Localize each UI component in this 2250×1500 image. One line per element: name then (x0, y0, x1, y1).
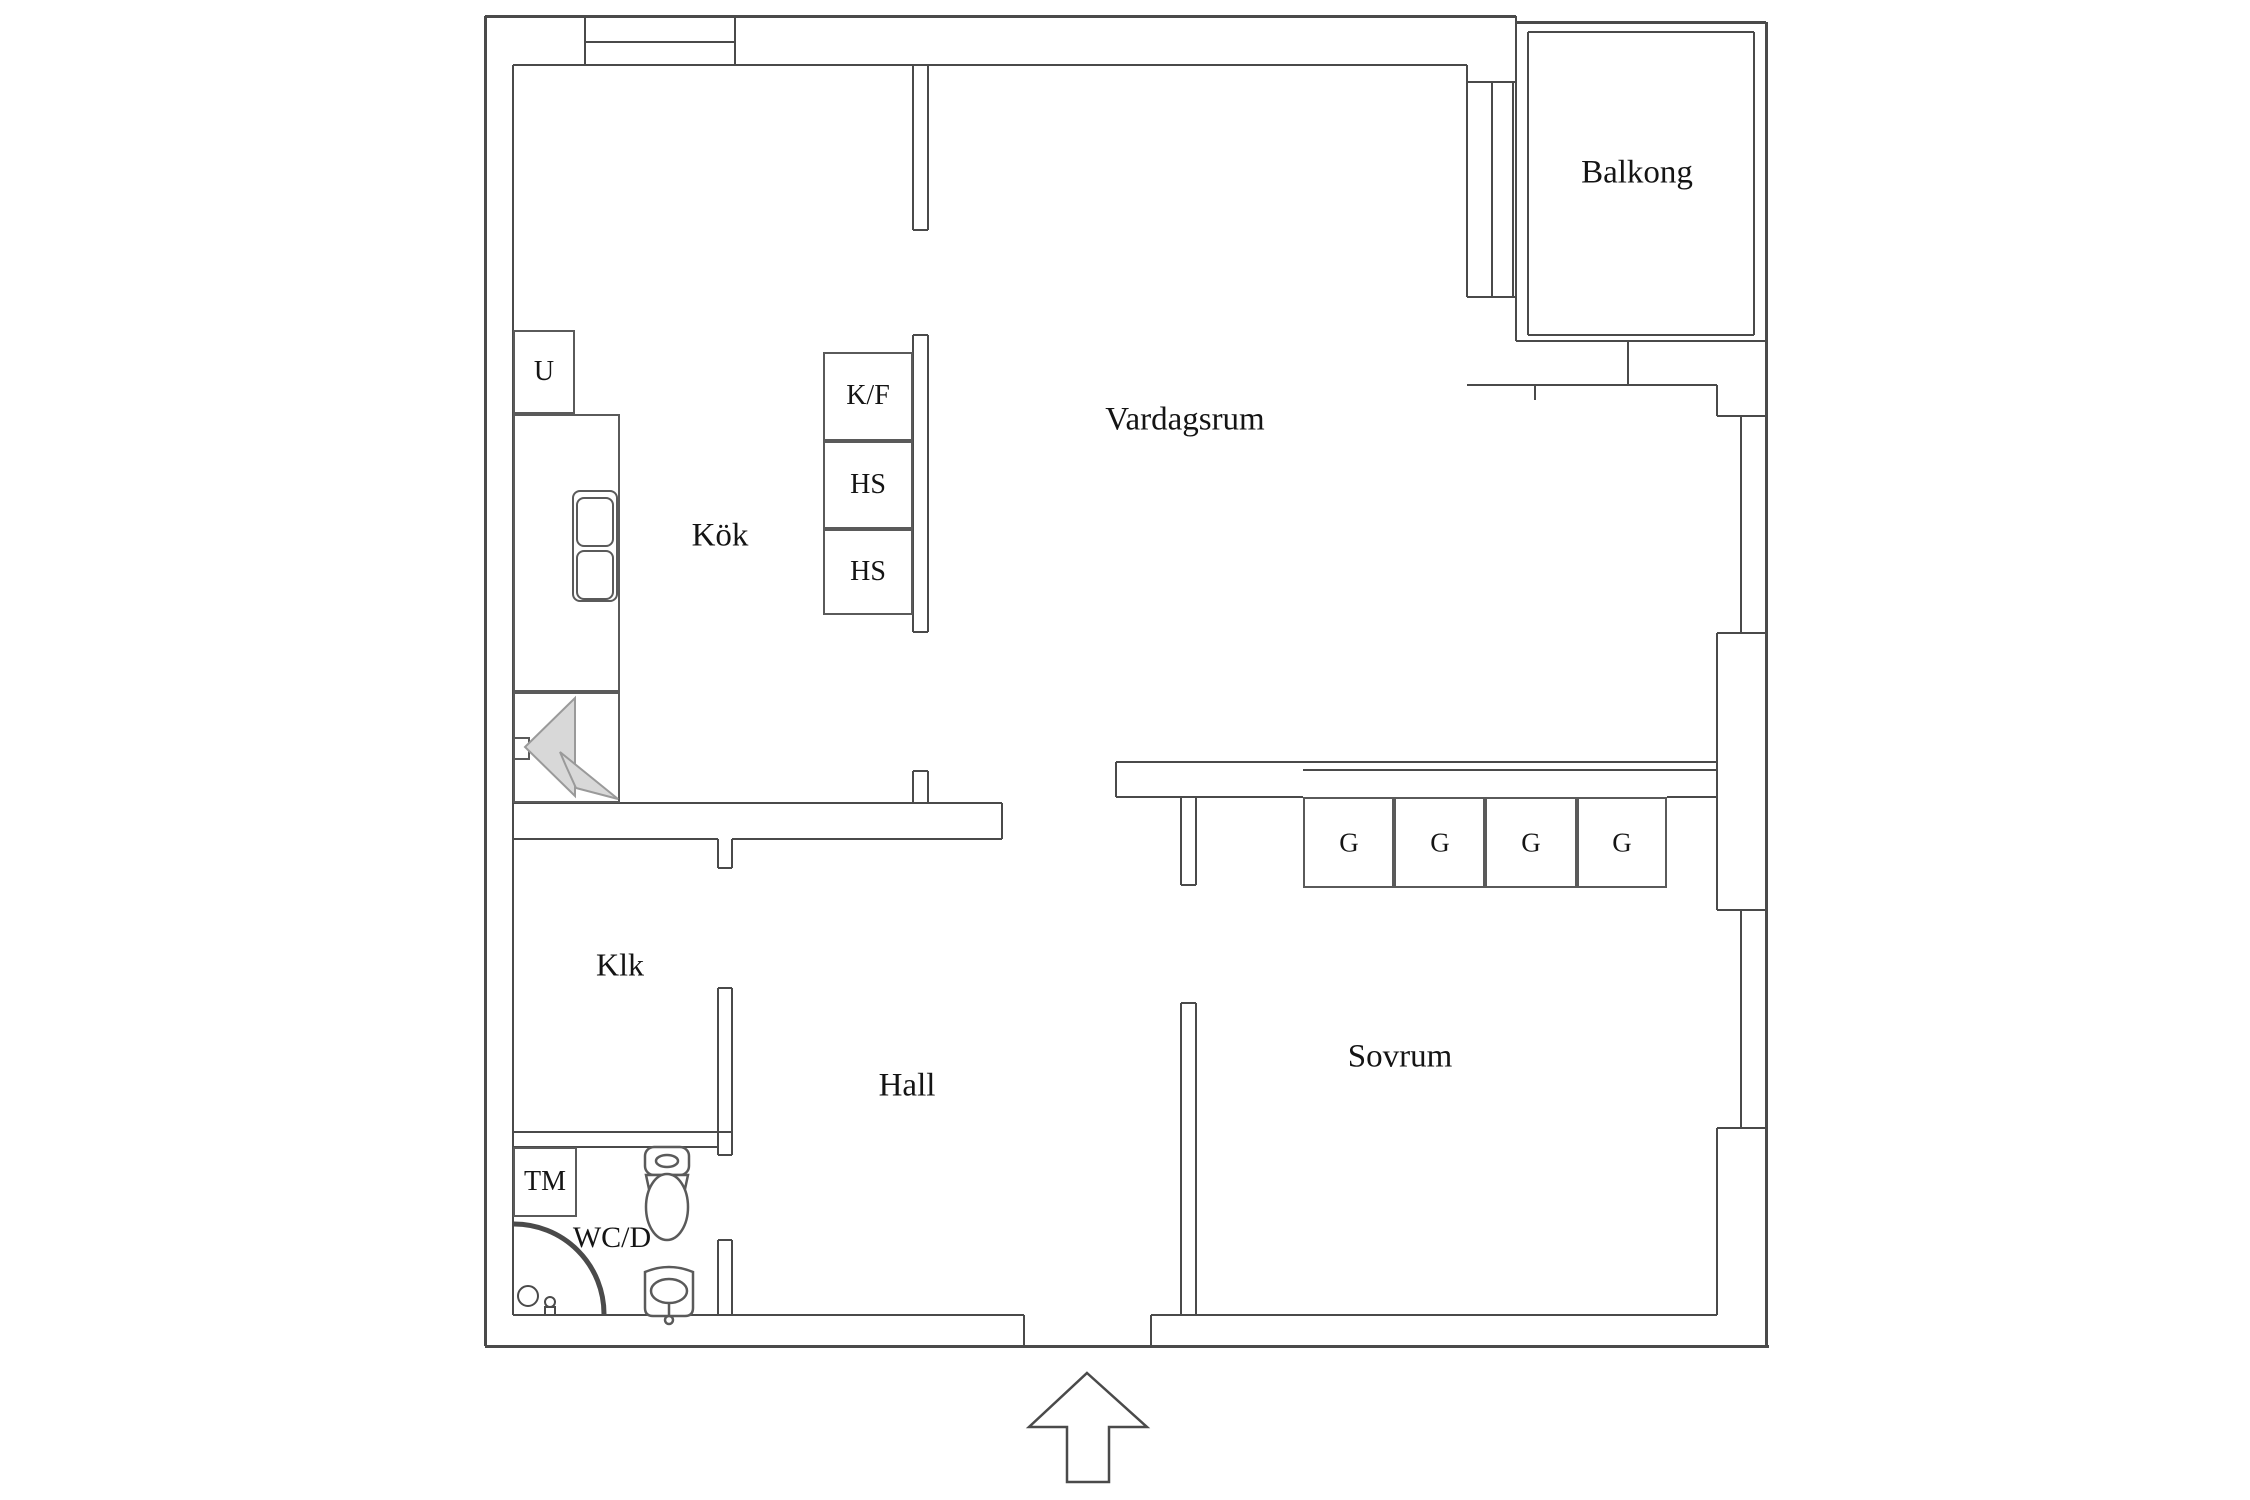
wall-segment (513, 64, 1467, 66)
wall-segment (734, 16, 736, 65)
wall-segment (927, 335, 929, 632)
wall-segment (1534, 385, 1536, 400)
label-g2: G (1430, 828, 1450, 859)
label-kf: K/F (846, 380, 890, 412)
wall-segment (1466, 65, 1468, 297)
wall-segment (718, 1154, 732, 1156)
wall-segment (513, 1314, 1024, 1316)
label-balkong: Balkong (1581, 155, 1693, 192)
wall-segment (1516, 21, 1766, 24)
floor-plan-canvas: BalkongVardagsrumKökKlkHallSovrumWC/DTMU… (0, 0, 2250, 1500)
wall-segment (717, 839, 719, 868)
wall-segment (731, 1240, 733, 1315)
wall-segment (1181, 1002, 1196, 1004)
label-hall: Hall (879, 1068, 936, 1105)
wall-segment (927, 771, 929, 803)
sink-bowl-1 (576, 497, 614, 547)
wall-segment (912, 771, 914, 803)
wall-segment (1491, 82, 1493, 297)
wall-segment (913, 334, 928, 336)
label-hs1: HS (850, 469, 886, 501)
wall-segment (1116, 761, 1717, 763)
wall-segment (1528, 334, 1754, 336)
label-g4: G (1612, 828, 1632, 859)
wall-segment (1180, 1003, 1182, 1315)
wall-segment (1180, 797, 1182, 885)
label-vardagsrum: Vardagsrum (1105, 402, 1264, 439)
wall-segment (718, 867, 732, 869)
wall-segment (1467, 384, 1717, 386)
wall-segment (718, 1239, 732, 1241)
wall-segment (1527, 32, 1529, 335)
entrance-arrow-icon (1029, 1373, 1147, 1482)
sink-bowl-2 (576, 550, 614, 600)
wall-segment (731, 988, 733, 1155)
wall-segment (1765, 22, 1768, 1346)
wall-segment (584, 16, 586, 65)
label-klk: Klk (596, 947, 644, 984)
wall-segment (1528, 31, 1754, 33)
wall-segment (1001, 803, 1003, 839)
wall-segment (485, 1345, 1769, 1348)
wall-segment (927, 65, 929, 230)
wall-segment (513, 838, 718, 840)
wall-segment (913, 631, 928, 633)
wall-segment (1753, 32, 1755, 335)
wall-segment (731, 839, 733, 868)
wall-segment (1515, 16, 1517, 341)
wall-segment (1150, 1315, 1152, 1346)
toilet-icon (645, 1147, 689, 1240)
wall-segment (1116, 796, 1303, 798)
wall-segment (1716, 1128, 1718, 1315)
wall-segment (732, 838, 1002, 840)
wall-segment (1115, 762, 1117, 797)
wall-segment (1181, 884, 1196, 886)
wall-segment (513, 1131, 732, 1133)
label-kok: Kök (692, 518, 749, 555)
wall-segment (1151, 1314, 1717, 1316)
wall-segment (717, 988, 719, 1155)
wall-segment (1023, 1315, 1025, 1346)
label-u: U (534, 356, 554, 388)
wall-segment (1716, 633, 1718, 910)
wall-vent (513, 737, 530, 760)
wall-segment (484, 16, 487, 1346)
wall-segment (1740, 416, 1742, 633)
wall-segment (1195, 797, 1197, 885)
wall-segment (717, 1240, 719, 1315)
wall-segment (1667, 796, 1717, 798)
label-g3: G (1521, 828, 1541, 859)
wall-segment (1195, 1003, 1197, 1315)
wall-segment (718, 987, 732, 989)
label-g1: G (1339, 828, 1359, 859)
wall-segment (912, 65, 914, 230)
wall-segment (1740, 910, 1742, 1128)
wall-segment (1303, 769, 1717, 771)
wall-segment (585, 41, 735, 43)
label-sovrum: Sovrum (1348, 1039, 1453, 1076)
wall-segment (1627, 341, 1629, 385)
wall-segment (485, 15, 1516, 18)
wall-segment (913, 770, 928, 772)
label-wcd: WC/D (573, 1221, 651, 1255)
wall-segment (1716, 385, 1718, 416)
wall-segment (913, 229, 928, 231)
wall-segment (1516, 340, 1766, 342)
wall-segment (1512, 82, 1514, 297)
label-tm: TM (524, 1166, 566, 1198)
fixture-overlay (0, 0, 2250, 1500)
label-hs2: HS (850, 556, 886, 588)
